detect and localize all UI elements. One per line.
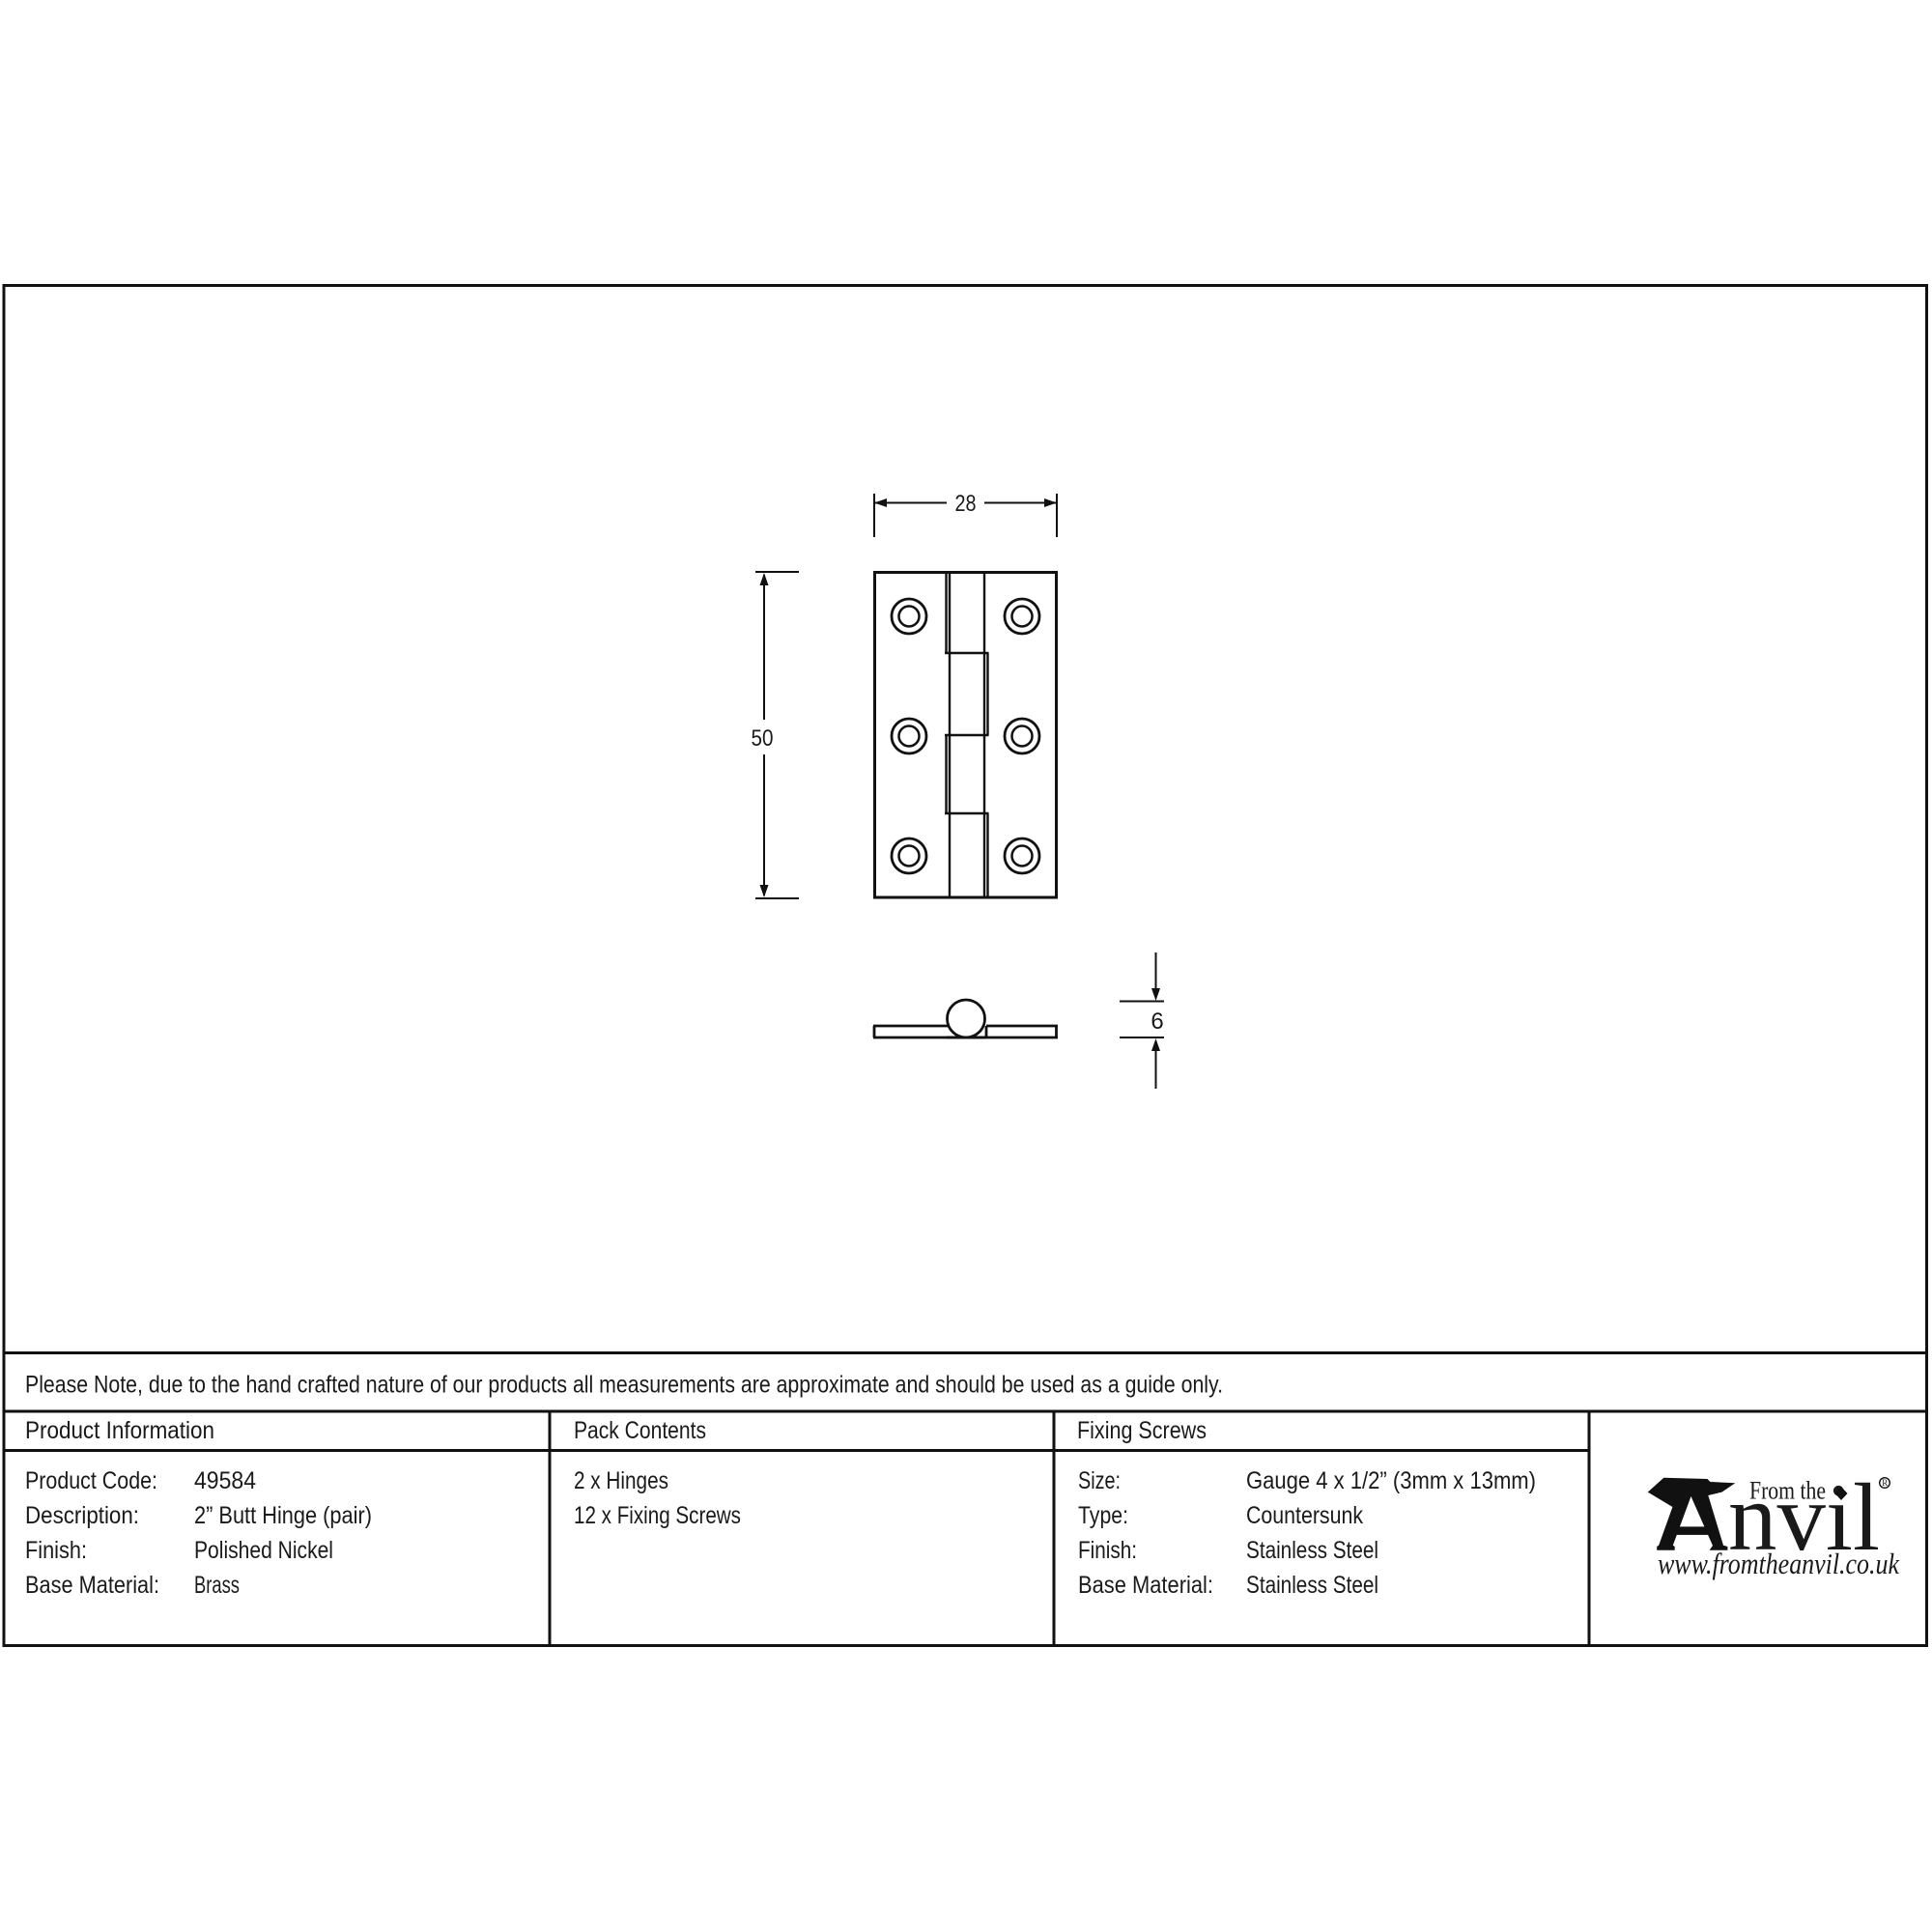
svg-text:Brass: Brass [194,1572,240,1599]
svg-text:Finish:: Finish: [1078,1537,1137,1564]
svg-text:12 x Fixing Screws: 12 x Fixing Screws [574,1502,741,1529]
svg-text:Base Material:: Base Material: [25,1572,159,1599]
svg-text:Finish:: Finish: [25,1537,87,1564]
svg-text:Base Material:: Base Material: [1078,1572,1213,1599]
svg-text:2 x Hinges: 2 x Hinges [574,1467,668,1494]
svg-text:Type:: Type: [1078,1502,1128,1529]
svg-text:Product Code:: Product Code: [25,1467,157,1494]
svg-text:2” Butt Hinge (pair): 2” Butt Hinge (pair) [194,1502,372,1529]
svg-text:Stainless Steel: Stainless Steel [1246,1537,1378,1564]
svg-text:49584: 49584 [194,1467,256,1494]
svg-text:Description:: Description: [25,1502,139,1529]
svg-text:Gauge 4 x 1/2” (3mm x 13mm): Gauge 4 x 1/2” (3mm x 13mm) [1246,1467,1536,1494]
svg-text:Countersunk: Countersunk [1246,1502,1363,1529]
svg-text:R: R [1882,1478,1888,1488]
svg-text:Fixing Screws: Fixing Screws [1077,1417,1207,1444]
svg-text:Product Information: Product Information [25,1417,214,1444]
svg-text:Stainless Steel: Stainless Steel [1246,1572,1378,1599]
svg-text:Size:: Size: [1078,1467,1121,1494]
svg-text:50: 50 [752,725,774,752]
svg-text:Pack Contents: Pack Contents [574,1417,706,1444]
svg-text:Polished Nickel: Polished Nickel [194,1537,333,1564]
svg-text:www.fromtheanvil.co.uk: www.fromtheanvil.co.uk [1658,1547,1900,1580]
svg-text:6: 6 [1151,1009,1163,1035]
svg-text:Please Note, due to the hand c: Please Note, due to the hand crafted nat… [25,1372,1223,1399]
svg-text:From the: From the [1749,1477,1826,1505]
svg-text:28: 28 [955,491,977,517]
